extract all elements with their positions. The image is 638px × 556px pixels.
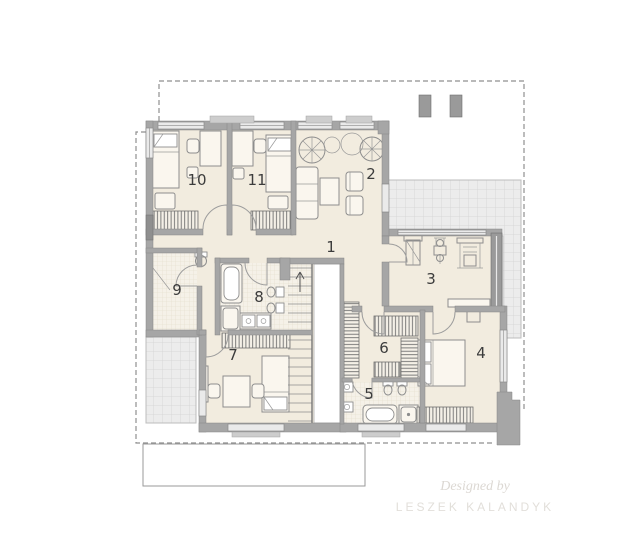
balcony-pier: [497, 392, 520, 445]
room-label-3: 3: [426, 270, 436, 288]
room-label-9: 9: [172, 281, 182, 299]
stair-void: [314, 264, 340, 423]
room-label-8: 8: [254, 288, 264, 306]
room-label-1: 1: [326, 238, 336, 256]
watermark-line2: LESZEK KALANDYK: [396, 500, 554, 514]
room-label-4: 4: [476, 344, 486, 362]
designer-watermark: Designed by LESZEK KALANDYK: [396, 479, 554, 514]
room-label-5: 5: [364, 385, 374, 403]
watermark-line1: Designed by: [439, 479, 510, 494]
room-label-7: 7: [228, 346, 238, 364]
room-label-6: 6: [379, 339, 389, 357]
lower-floor-outline: [143, 444, 365, 486]
room-label-10: 10: [187, 171, 206, 189]
chimney-icons: [419, 95, 462, 117]
room-label-11: 11: [247, 171, 266, 189]
floor-plan-page: 1 2 3 4 5 6 7 8 9 10 11 Designed by LESZ…: [0, 0, 638, 556]
floor-plan-drawing: 1 2 3 4 5 6 7 8 9 10 11 Designed by LESZ…: [0, 0, 638, 556]
room-label-2: 2: [366, 165, 376, 183]
